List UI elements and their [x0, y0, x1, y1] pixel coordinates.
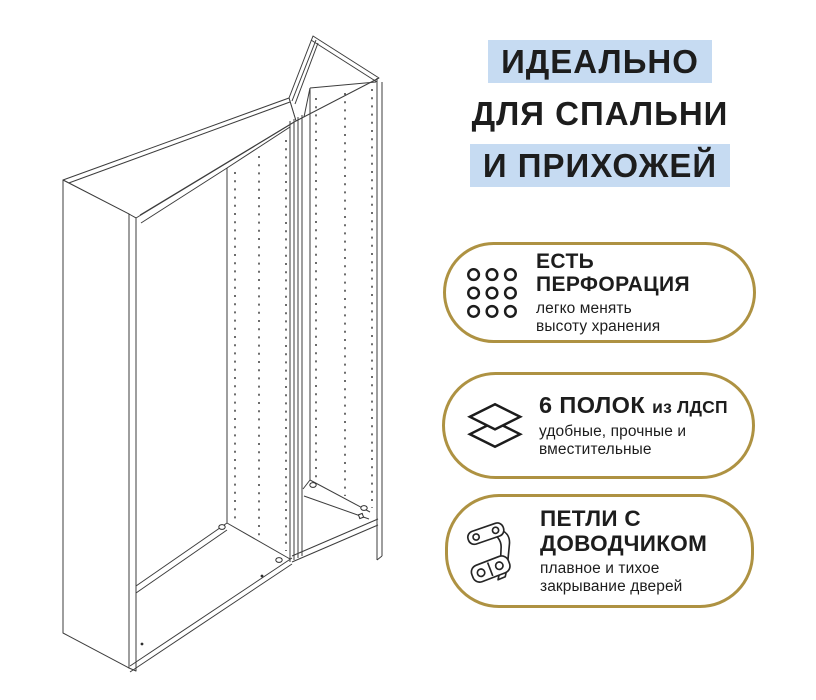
shelf-layers-icon: [467, 402, 523, 449]
feature-subtitle: плавное и тихое закрывание дверей: [540, 560, 707, 596]
feature-card-hinges: ПЕТЛИ С ДОВОДЧИКОМ плавное и тихое закры…: [445, 494, 754, 608]
headline-line-2: ДЛЯ СПАЛЬНИ: [459, 92, 742, 135]
headline-line-1: ИДЕАЛЬНО: [488, 40, 712, 83]
headline-line-3: И ПРИХОЖЕЙ: [470, 144, 730, 187]
feature-title: ПЕТЛИ С ДОВОДЧИКОМ: [540, 506, 707, 556]
feature-title: ЕСТЬ ПЕРФОРАЦИЯ: [536, 250, 690, 296]
wardrobe-frame-illustration: [0, 0, 450, 700]
feature-subtitle: удобные, прочные и вместительные: [539, 423, 728, 459]
infographic-canvas: ИДЕАЛЬНО ДЛЯ СПАЛЬНИ И ПРИХОЖЕЙ ЕСТЬ ПЕР…: [0, 0, 816, 700]
perforation-grid-icon: [466, 267, 518, 319]
feature-card-perforation: ЕСТЬ ПЕРФОРАЦИЯ легко менять высоту хран…: [443, 242, 756, 343]
headline: ИДЕАЛЬНО ДЛЯ СПАЛЬНИ И ПРИХОЖЕЙ: [432, 40, 768, 187]
soft-close-hinge-icon: [464, 515, 528, 587]
feature-title: 6 ПОЛОК из ЛДСП: [539, 392, 728, 419]
feature-subtitle: легко менять высоту хранения: [536, 300, 690, 336]
feature-card-shelves: 6 ПОЛОК из ЛДСП удобные, прочные и вмест…: [442, 372, 755, 479]
